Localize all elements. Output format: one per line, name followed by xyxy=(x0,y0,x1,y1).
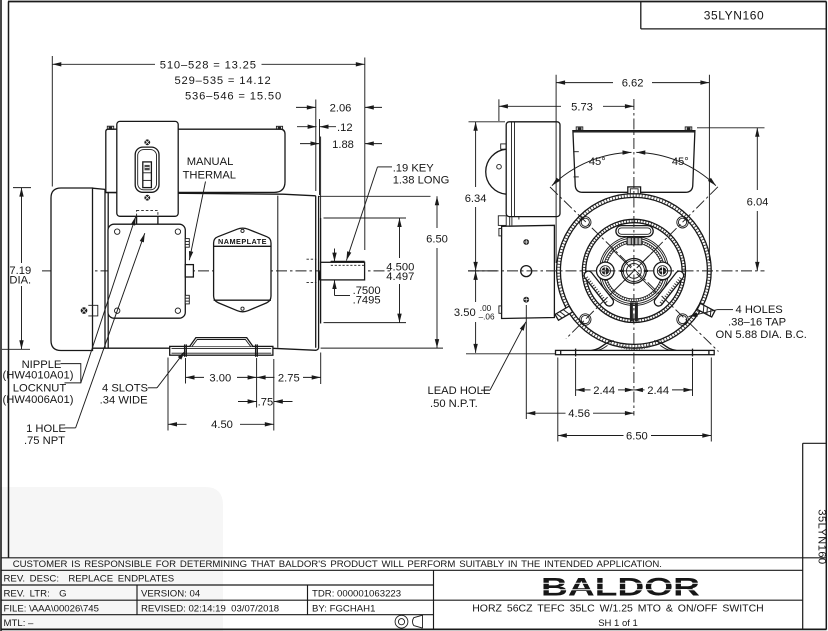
svg-text:LOCKNUT: LOCKNUT xyxy=(13,383,67,395)
svg-text:THERMAL: THERMAL xyxy=(183,170,236,182)
svg-text:4.56: 4.56 xyxy=(568,408,590,420)
svg-text:4.497: 4.497 xyxy=(386,271,414,283)
svg-text:DIA.: DIA. xyxy=(9,274,31,286)
svg-text:BY: FGCHAH1: BY: FGCHAH1 xyxy=(312,603,375,614)
svg-text:(HW4010A01): (HW4010A01) xyxy=(3,369,74,381)
svg-text:4 SLOTS: 4 SLOTS xyxy=(102,383,148,395)
svg-text:(HW4006A01): (HW4006A01) xyxy=(3,394,74,406)
svg-text:2.44: 2.44 xyxy=(647,385,669,397)
svg-text:3.00: 3.00 xyxy=(209,372,231,384)
svg-text:6.62: 6.62 xyxy=(622,78,644,90)
svg-text:45°: 45° xyxy=(672,156,689,168)
svg-text:4.50: 4.50 xyxy=(211,419,233,431)
svg-text:6.04: 6.04 xyxy=(747,197,769,209)
svg-text:.75 NPT: .75 NPT xyxy=(24,435,65,447)
svg-text:.19 KEY: .19 KEY xyxy=(393,162,435,174)
svg-text:45°: 45° xyxy=(589,156,606,168)
svg-text:.50 N.P.T.: .50 N.P.T. xyxy=(430,398,478,410)
svg-text:BALDOR: BALDOR xyxy=(541,574,700,602)
svg-text:536–546 = 15.50: 536–546 = 15.50 xyxy=(185,91,282,103)
svg-text:HORZ 56CZ TEFC 35LC W/1.25 MTO: HORZ 56CZ TEFC 35LC W/1.25 MTO & ON/OFF … xyxy=(472,603,764,615)
svg-text:SH 1 of 1: SH 1 of 1 xyxy=(598,618,638,629)
svg-text:.34 WIDE: .34 WIDE xyxy=(100,395,148,407)
svg-text:CUSTOMER IS RESPONSIBLE FOR DE: CUSTOMER IS RESPONSIBLE FOR DETERMINING … xyxy=(13,559,662,570)
svg-text:2.75: 2.75 xyxy=(278,372,300,384)
svg-text:2.44: 2.44 xyxy=(593,385,615,397)
svg-text:NAMEPLATE: NAMEPLATE xyxy=(218,237,267,246)
svg-text:6.50: 6.50 xyxy=(626,430,648,442)
svg-text:6.34: 6.34 xyxy=(465,193,487,205)
svg-text:VERSION: 04: VERSION: 04 xyxy=(141,589,201,600)
svg-text:529–535 = 14.12: 529–535 = 14.12 xyxy=(174,75,271,87)
svg-text:.75: .75 xyxy=(258,396,274,408)
svg-text:MANUAL: MANUAL xyxy=(187,156,234,168)
svg-text:1.38 LONG: 1.38 LONG xyxy=(393,174,450,186)
svg-text:ON 5.88 DIA. B.C.: ON 5.88 DIA. B.C. xyxy=(716,329,807,341)
svg-text:3.50: 3.50 xyxy=(454,307,476,319)
svg-text:2.06: 2.06 xyxy=(330,103,352,115)
svg-text:35LYN160: 35LYN160 xyxy=(816,509,828,564)
svg-text:1.88: 1.88 xyxy=(332,139,354,151)
svg-text:TDR: 000001063223: TDR: 000001063223 xyxy=(312,589,401,600)
svg-text:–.06: –.06 xyxy=(479,313,495,322)
svg-text:35LYN160: 35LYN160 xyxy=(704,9,765,23)
svg-text:6.50: 6.50 xyxy=(426,234,448,246)
svg-text:5.73: 5.73 xyxy=(571,101,593,113)
svg-text:1 HOLE: 1 HOLE xyxy=(26,423,66,435)
svg-text:REVISED: 02:14:19 03/07/2018: REVISED: 02:14:19 03/07/2018 xyxy=(141,603,279,614)
svg-text:510–528 = 13.25: 510–528 = 13.25 xyxy=(160,60,257,72)
svg-text:.7495: .7495 xyxy=(353,294,381,306)
svg-text:FILE: \AAA\00026\745: FILE: \AAA\00026\745 xyxy=(4,603,99,614)
svg-text:LEAD HOLE: LEAD HOLE xyxy=(428,385,491,397)
svg-text:REV. DESC: REPLACE ENDPLATES: REV. DESC: REPLACE ENDPLATES xyxy=(4,574,175,585)
svg-text:.38–16 TAP: .38–16 TAP xyxy=(728,316,786,328)
svg-text:.12: .12 xyxy=(337,122,353,134)
svg-text:REV. LTR: G: REV. LTR: G xyxy=(4,589,67,600)
svg-text:MTL: –: MTL: – xyxy=(4,618,35,629)
svg-text:4 HOLES: 4 HOLES xyxy=(736,304,783,316)
